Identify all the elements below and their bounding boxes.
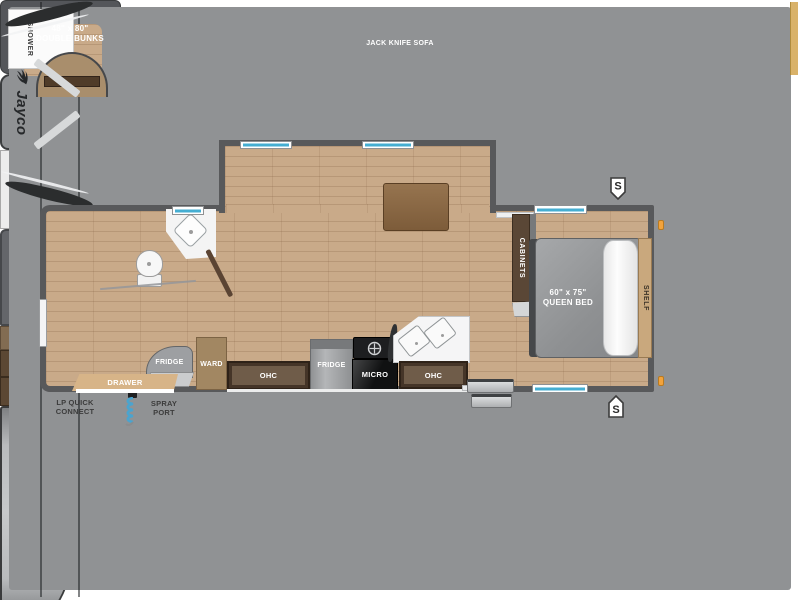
window bbox=[532, 384, 588, 393]
bed-size-label: 60" x 75" bbox=[535, 288, 601, 298]
microwave-label: MICRO bbox=[362, 370, 389, 379]
ohc-left-panel: OHC bbox=[232, 366, 305, 385]
cabinet-sill bbox=[227, 389, 469, 392]
lp-label-line1: LP QUICK bbox=[50, 398, 100, 407]
window bbox=[362, 141, 414, 149]
shower-door-trim bbox=[790, 2, 798, 75]
bathroom-sink-faucet bbox=[189, 230, 193, 234]
bed-label-group: 60" x 75" QUEEN BED bbox=[535, 288, 601, 307]
marker-light-bottom bbox=[658, 376, 664, 386]
toilet-flush-icon bbox=[147, 262, 151, 266]
overhead-cabinet-left: OHC bbox=[227, 361, 310, 390]
marker-light-top bbox=[658, 220, 664, 230]
speaker-badge-bottom: S bbox=[606, 393, 626, 419]
ohc-right-panel: OHC bbox=[404, 366, 463, 384]
entry-step-lower bbox=[471, 394, 512, 408]
rear-window bbox=[39, 299, 47, 347]
fridge-top-band bbox=[311, 340, 352, 349]
window bbox=[240, 141, 292, 149]
window-glass bbox=[535, 387, 585, 390]
lp-label-line2: CONNECT bbox=[50, 407, 100, 416]
burner-icon bbox=[367, 341, 382, 356]
window bbox=[172, 206, 204, 215]
floorplan-canvas: 284BHS 16' AWNING JACK KNIFE SOFA SHOWER bbox=[0, 0, 800, 600]
window-glass bbox=[243, 144, 289, 147]
cabinets-label: CABINETS bbox=[515, 216, 527, 300]
spray-port-label: SPRAY PORT bbox=[142, 399, 186, 418]
bunks-name-label: DOUBLE BUNKS bbox=[10, 34, 130, 44]
speaker-badge-top: S bbox=[608, 176, 628, 202]
window-glass bbox=[175, 209, 201, 212]
spray-label-line2: PORT bbox=[142, 408, 186, 417]
speaker-badge-letter: S bbox=[614, 181, 621, 193]
microwave: MICRO bbox=[352, 359, 398, 390]
kitchen-fridge: FRIDGE bbox=[310, 339, 353, 390]
bed-name-label: QUEEN BED bbox=[535, 298, 601, 308]
entry-step-upper bbox=[467, 379, 514, 393]
sink-drain bbox=[441, 334, 444, 337]
cabinets: CABINETS bbox=[512, 214, 530, 302]
rear-fridge-label: FRIDGE bbox=[147, 359, 192, 367]
spray-label-line1: SPRAY bbox=[142, 399, 186, 408]
shelf-label: SHELF bbox=[639, 243, 651, 353]
rear-wardrobe: WARD bbox=[196, 337, 227, 390]
slide-out-floor-patch bbox=[226, 204, 489, 213]
sink-basin-right bbox=[423, 316, 457, 349]
lp-quick-connect-label: LP QUICK CONNECT bbox=[50, 398, 100, 417]
window-glass bbox=[365, 144, 411, 147]
rear-ward-label: WARD bbox=[193, 361, 230, 369]
speaker-badge-letter: S bbox=[612, 404, 619, 416]
overhead-cabinet-right: OHC bbox=[399, 361, 468, 389]
slide-out-room bbox=[219, 140, 496, 213]
window bbox=[534, 205, 587, 214]
kitchen-fridge-label: FRIDGE bbox=[311, 362, 352, 370]
bed-pillows bbox=[603, 240, 638, 356]
dinette-table bbox=[383, 183, 449, 231]
sink-drain bbox=[415, 342, 418, 345]
ohc-right-label: OHC bbox=[425, 371, 443, 380]
drawer-label: DRAWER bbox=[72, 378, 178, 387]
spray-port-coil-icon bbox=[123, 397, 143, 427]
ohc-left-label: OHC bbox=[260, 371, 278, 380]
shelf: SHELF bbox=[638, 238, 652, 358]
window-glass bbox=[537, 208, 584, 211]
drawer-sill bbox=[76, 389, 174, 393]
